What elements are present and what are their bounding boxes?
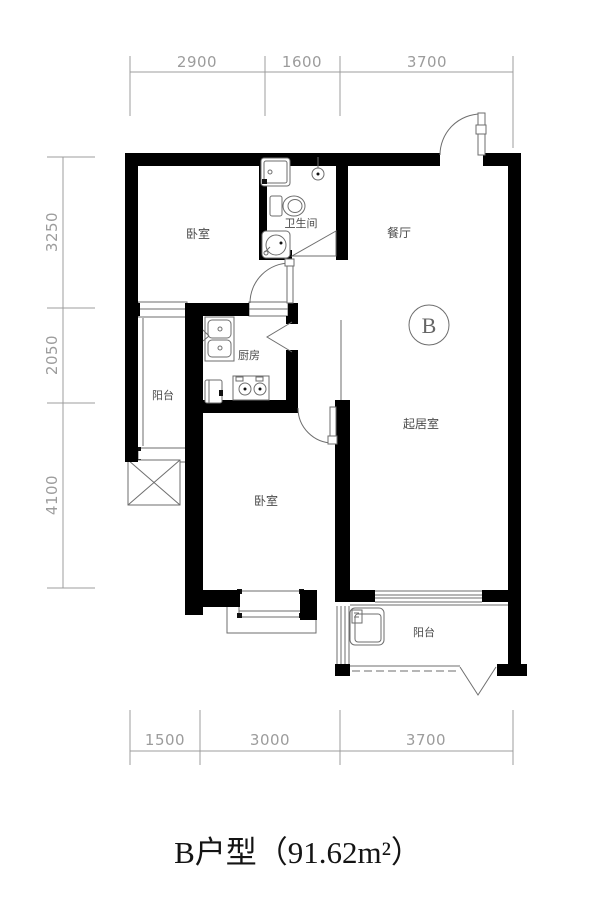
room-label-kitchen: 厨房: [238, 349, 260, 362]
toilet: [270, 196, 305, 216]
bathtub: [261, 158, 290, 186]
dim-top-2: 1600: [282, 53, 322, 71]
bedroom2-door: [298, 407, 337, 444]
washbasin: [262, 231, 290, 258]
dim-left-2: 2050: [43, 335, 61, 375]
bedroom1-door: [250, 259, 294, 303]
stove: [233, 376, 269, 400]
dim-bottom-3: 3700: [406, 731, 446, 749]
window-bedroom1-balcony: [138, 302, 187, 317]
unit-badge: B: [409, 305, 449, 345]
room-label-bedroom1: 卧室: [186, 226, 210, 241]
dim-bottom-1: 1500: [145, 731, 185, 749]
room-label-bathroom: 卫生间: [285, 216, 318, 230]
dim-left-3: 4100: [43, 475, 61, 515]
window-bedroom2-bay: [237, 589, 304, 618]
dim-top-3: 3700: [407, 53, 447, 71]
unit-badge-letter: B: [422, 313, 437, 338]
room-label-living: 起居室: [403, 416, 439, 431]
page-title: B户型（91.62m²）: [174, 835, 422, 870]
bathroom-door: [292, 231, 336, 256]
room-label-dining: 餐厅: [387, 225, 411, 240]
entry-door: [440, 113, 486, 155]
window-living-south: [375, 591, 482, 602]
window-kitchen-pass: [249, 302, 288, 316]
floor-plan-page: 2900 1600 3700 3250 2050 4100 1500 3000 …: [0, 0, 600, 900]
room-label-bedroom2: 卧室: [254, 493, 278, 508]
dim-left-1: 3250: [43, 212, 61, 252]
water-heater: [205, 380, 223, 403]
room-label-balcony-west: 阳台: [152, 388, 174, 402]
washing-machine: [350, 608, 384, 645]
dimension-chain-bottom: 1500 3000 3700: [130, 710, 513, 765]
balcony-south-open-edge: [350, 666, 460, 671]
window-balcony-south-west: [337, 606, 349, 664]
dim-top-1: 2900: [177, 53, 217, 71]
room-label-balcony-south: 阳台: [413, 625, 435, 639]
kitchen-door: [267, 322, 292, 352]
dim-bottom-2: 3000: [250, 731, 290, 749]
kitchen-sink: [203, 317, 234, 361]
dimension-chain-top: 2900 1600 3700: [130, 53, 513, 148]
dimension-chain-left: 3250 2050 4100: [43, 157, 95, 588]
floor-plan-svg: 2900 1600 3700 3250 2050 4100 1500 3000 …: [0, 0, 600, 900]
balcony-door: [460, 667, 496, 695]
shaft-flue-box: [128, 460, 180, 505]
